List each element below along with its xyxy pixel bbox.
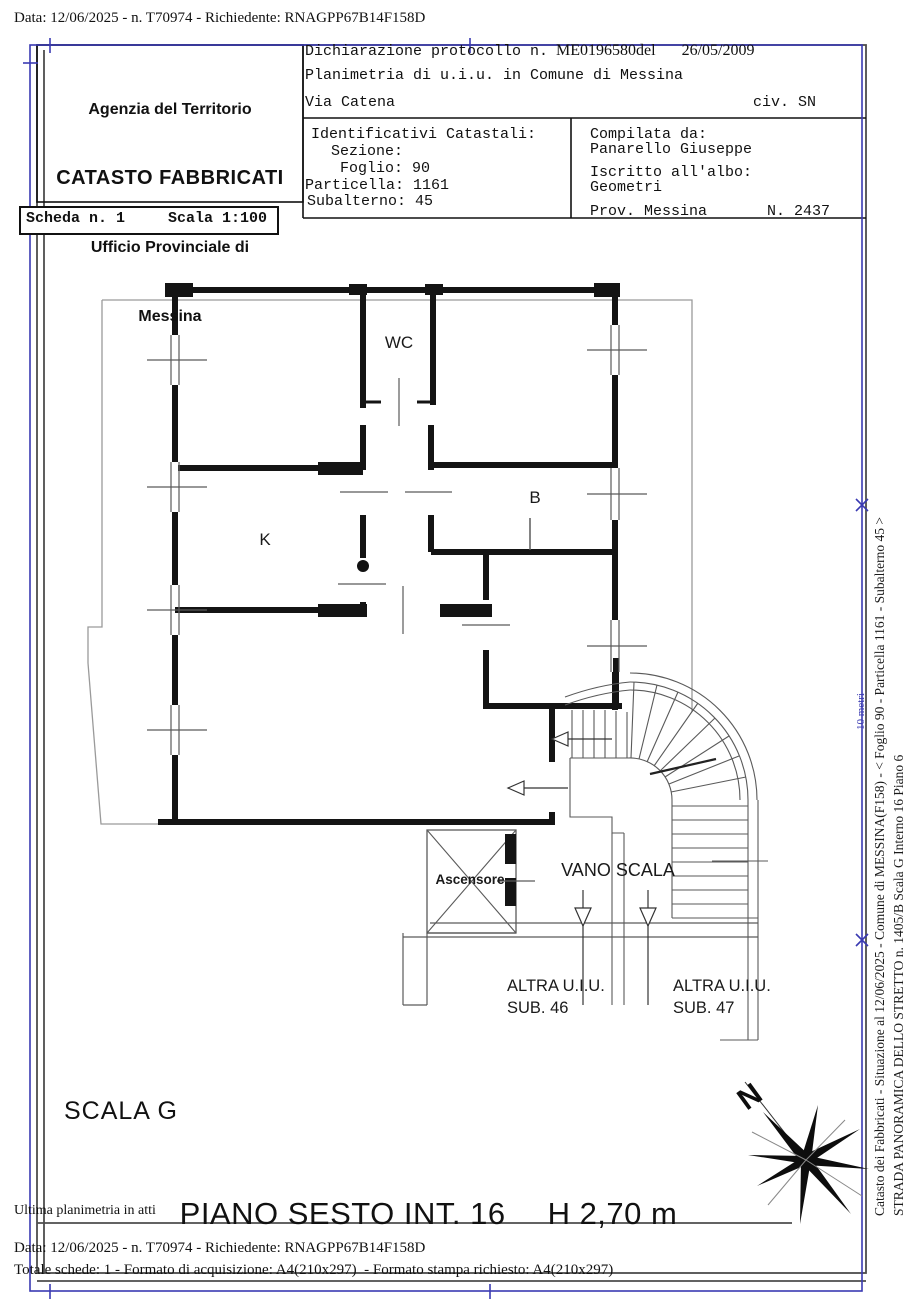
footer-totale-line: Totale schede: 1 - Formato di acquisizio… [14, 1262, 613, 1279]
stair-direction-arrow [552, 732, 612, 746]
margin-text-line1: Catasto dei Fabbricati - Situazione al 1… [872, 517, 887, 1216]
identifiers-title: Identificativi Catastali: [311, 126, 536, 143]
room-label-b: B [529, 488, 540, 507]
request-info-line: Data: 12/06/2025 - n. T70974 - Richieden… [14, 10, 425, 27]
ultima-note: Ultima planimetria in atti [14, 1203, 156, 1219]
identifier-particella: Particella: 1161 [305, 177, 449, 194]
agency-header: Agenzia del Territorio CATASTO FABBRICAT… [37, 52, 303, 351]
compiler-name: Panarello Giuseppe [590, 141, 752, 158]
footer-data-line: Data: 12/06/2025 - n. T70974 - Richieden… [14, 1240, 425, 1257]
identifier-sezione: Sezione: [331, 143, 403, 160]
margin-text-line2: STRADA PANORAMICA DELLO STRETTO n. 1405/… [891, 754, 906, 1216]
declaration-protocol: ME0196580del [556, 42, 656, 59]
compiler-prov: Prov. Messina [590, 203, 707, 220]
cadastral-plan-page: 10 metri [0, 0, 920, 1301]
sub47-label-line1: ALTRA U.I.U. [673, 977, 771, 995]
room-labels: WC K B Ascensore VANO SCALA ALTRA U.I.U.… [259, 333, 770, 1017]
door-hinge-dot [357, 560, 369, 572]
planimetria-line: Planimetria di u.i.u. in Comune di Messi… [305, 67, 683, 84]
entrance-door-arrow [508, 781, 568, 795]
windows [147, 325, 647, 755]
compiler-number: N. 2437 [767, 203, 830, 220]
identifier-foglio: Foglio: 90 [340, 160, 430, 177]
room-label-k: K [259, 530, 271, 549]
sheet-scale: Scala 1:100 [168, 210, 267, 227]
floor-title: PIANO SESTO INT. 16H 2,70 m [176, 1196, 681, 1232]
stairwell-label: VANO SCALA [561, 860, 675, 880]
sub47-label-line2: SUB. 47 [673, 999, 734, 1017]
declaration-date: 26/05/2009 [682, 42, 755, 59]
walls [158, 287, 622, 825]
scale-note-label: 10 metri [855, 693, 867, 730]
elevator-label: Ascensore [435, 872, 505, 887]
declaration-prefix: Dichiarazione protocollo n. [305, 43, 548, 60]
floor-title-text: PIANO SESTO INT. 16 [180, 1196, 506, 1231]
agency-line1: Agenzia del Territorio [37, 98, 303, 121]
compass-rose: N [731, 1077, 869, 1224]
sheet-number: Scheda n. 1 [26, 210, 125, 227]
floor-height-text: H 2,70 m [548, 1196, 678, 1231]
stair-block-label: SCALA G [64, 1097, 178, 1126]
agency-line2: CATASTO FABBRICATI [37, 167, 303, 190]
civic-number: civ. SN [753, 94, 816, 111]
margin-vertical-text: Catasto dei Fabbricati - Situazione al 1… [872, 517, 906, 1216]
agency-line4: Messina [37, 305, 303, 328]
declaration-line: Dichiarazione protocollo n.ME0196580del2… [305, 42, 754, 60]
room-label-wc: WC [385, 333, 413, 352]
street-line: Via Catena [305, 94, 395, 111]
identifier-subalterno: Subalterno: 45 [307, 193, 433, 210]
agency-line3: Ufficio Provinciale di [37, 236, 303, 259]
sub46-label-line1: ALTRA U.I.U. [507, 977, 605, 995]
sub46-label-line2: SUB. 46 [507, 999, 568, 1017]
compiler-albo-value: Geometri [590, 179, 662, 196]
compass-north-letter: N [731, 1077, 768, 1116]
